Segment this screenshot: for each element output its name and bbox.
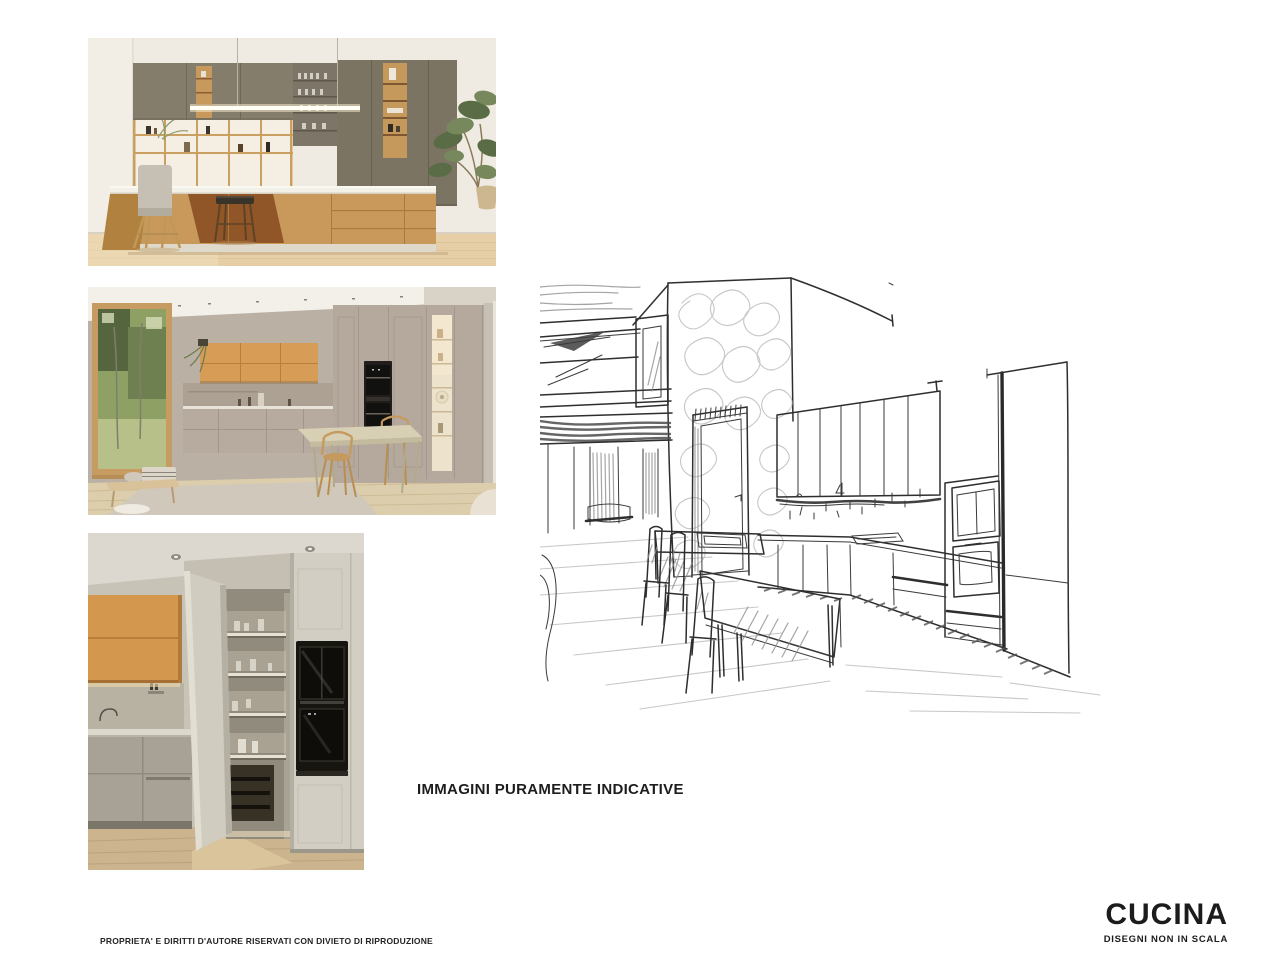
kitchen-island-photo bbox=[88, 38, 496, 266]
oven-column bbox=[290, 553, 364, 853]
copyright-note: PROPRIETA' E DIRITTI D'AUTORE RISERVATI … bbox=[100, 936, 433, 946]
tall-wall-units bbox=[333, 301, 496, 483]
left-run bbox=[88, 595, 192, 829]
kitchen-dining-illustration bbox=[88, 287, 496, 515]
wall-cabinets bbox=[777, 381, 942, 506]
kitchen-dining-photo bbox=[88, 287, 496, 515]
floor-lines bbox=[540, 537, 1100, 713]
caption-indicative-images: IMMAGINI PURAMENTE INDICATIVE bbox=[417, 781, 684, 798]
garden-window bbox=[92, 303, 172, 479]
kitchen-pantry-photo bbox=[88, 533, 364, 870]
mezzanine bbox=[540, 285, 672, 681]
tall-cabinets bbox=[337, 60, 457, 206]
title-block: CUCINA DISEGNI NON IN SCALA bbox=[1104, 900, 1228, 945]
page-title: CUCINA bbox=[1104, 900, 1228, 930]
kitchen-pantry-illustration bbox=[88, 533, 364, 870]
oven-tower bbox=[945, 362, 1070, 677]
kitchen-perspective-sketch bbox=[540, 245, 1180, 715]
presentation-page: IMMAGINI PURAMENTE INDICATIVE CUCINA DIS… bbox=[0, 0, 1280, 960]
kitchen-island-illustration bbox=[88, 38, 496, 266]
page-subtitle: DISEGNI NON IN SCALA bbox=[1104, 934, 1228, 945]
